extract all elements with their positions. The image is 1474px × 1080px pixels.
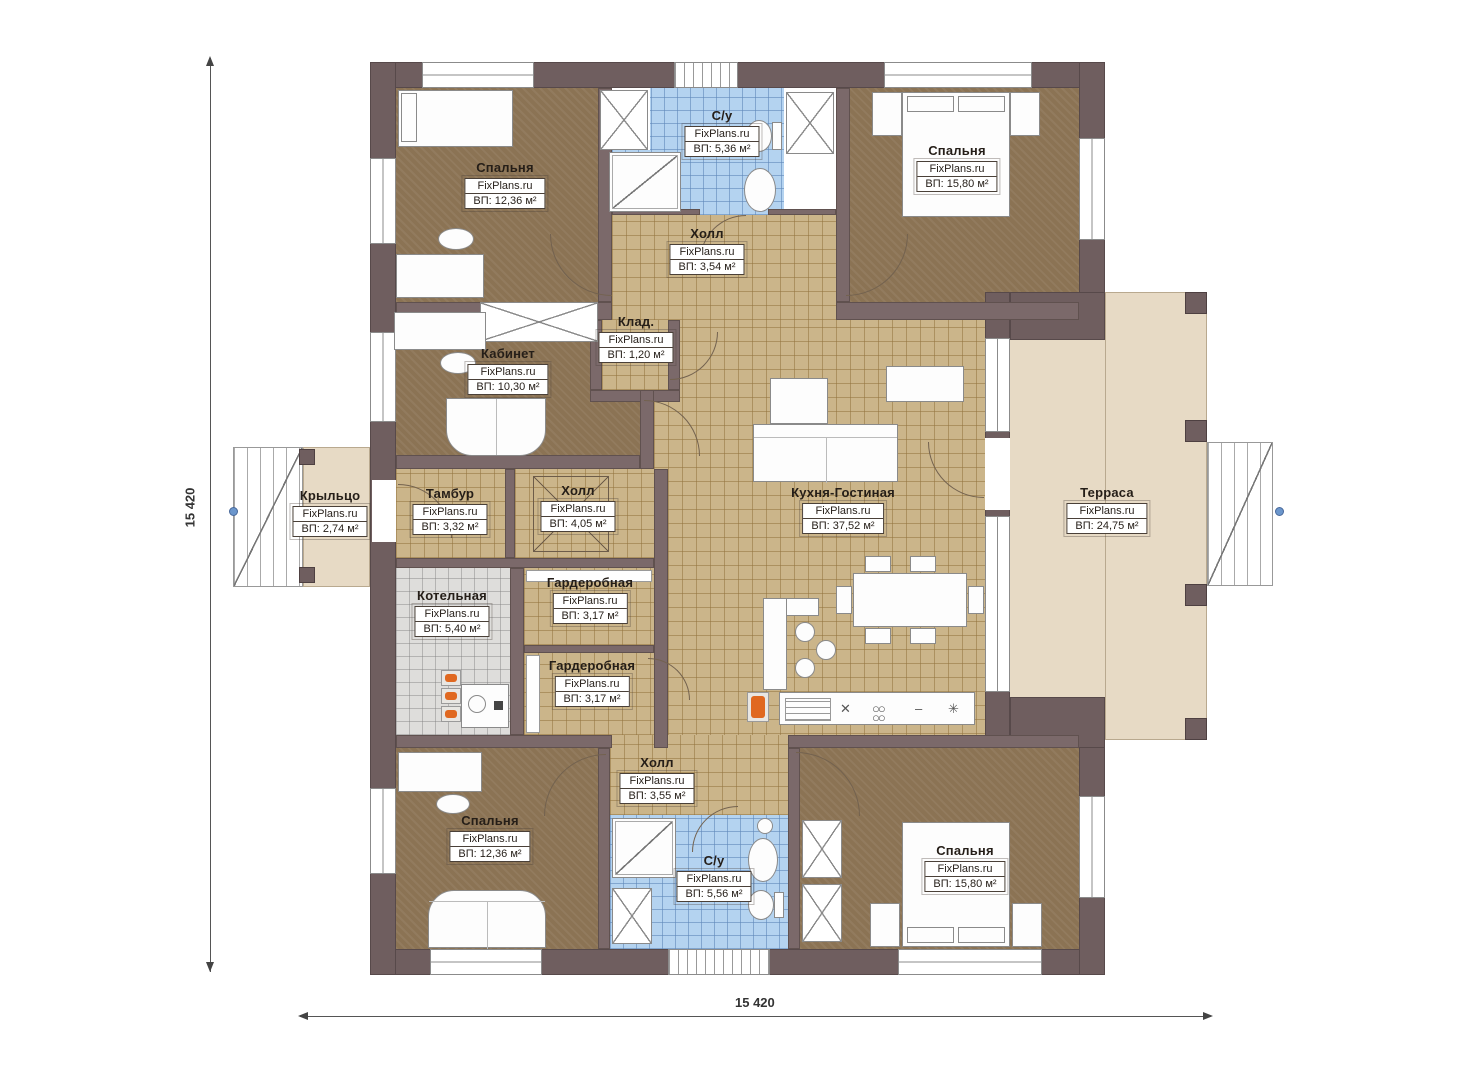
level-marker-icon — [229, 507, 238, 516]
room-area: ВП: 5,56 м² — [677, 887, 750, 901]
room-area: ВП: 37,52 м² — [803, 519, 882, 533]
toilet-tank — [772, 122, 782, 150]
wall-vestibule-boiler — [396, 558, 654, 568]
terrace-door-opening — [985, 438, 1010, 510]
room-label-bedroom-top-left: Спальня FixPlans.ru ВП: 12,36 м² — [464, 160, 545, 209]
dimension-arrow-down — [206, 962, 214, 972]
room-label-bathroom-bottom: С/у FixPlans.ru ВП: 5,56 м² — [676, 853, 751, 902]
bar-stool — [795, 622, 815, 642]
boiler-unit — [441, 706, 461, 722]
porch-pillar — [299, 567, 315, 583]
desk — [396, 254, 484, 298]
shower-tray — [612, 818, 676, 878]
window-terrace — [985, 338, 1010, 432]
wardrobe-cabinet — [600, 90, 648, 150]
wall-hall-kitchen — [654, 469, 668, 748]
watermark: FixPlans.ru — [1067, 504, 1146, 519]
desk — [394, 312, 486, 350]
tv-stand — [886, 366, 964, 402]
dimension-arrow-up — [206, 56, 214, 66]
room-name: Крыльцо — [292, 488, 367, 503]
room-label-porch: Крыльцо FixPlans.ru ВП: 2,74 м² — [292, 488, 367, 537]
room-name: Кабинет — [467, 346, 548, 361]
level-marker-icon — [1275, 507, 1284, 516]
room-name: Спальня — [464, 160, 545, 175]
wardrobe-cabinet — [786, 92, 834, 154]
room-label-vestibule: Тамбур FixPlans.ru ВП: 3,32 м² — [412, 486, 487, 535]
room-name: Гардеробная — [547, 575, 633, 590]
room-area: ВП: 3,32 м² — [413, 520, 486, 534]
window — [370, 332, 396, 422]
sink — [744, 168, 776, 212]
wall-bottom-band-left — [396, 735, 612, 748]
bar-stool — [795, 658, 815, 678]
room-area: ВП: 12,36 м² — [450, 847, 529, 861]
sofa — [428, 890, 546, 948]
room-label-wardrobe-upper: Гардеробная FixPlans.ru ВП: 3,17 м² — [547, 575, 633, 624]
room-area: ВП: 1,20 м² — [599, 348, 672, 362]
bar-stool — [816, 640, 836, 660]
room-label-hall-middle: Холл FixPlans.ru ВП: 4,05 м² — [540, 483, 615, 532]
wall-boiler-wardrobe — [510, 568, 524, 735]
drawers-unit — [785, 698, 831, 721]
nightstand — [1010, 92, 1040, 136]
dining-chair — [910, 556, 936, 572]
dishwasher-icon: – — [915, 702, 922, 715]
room-label-bedroom-bottom-right: Спальня FixPlans.ru ВП: 15,80 м² — [924, 843, 1005, 892]
bed-pillow — [907, 927, 954, 943]
chair — [436, 794, 470, 814]
room-name: Гардеробная — [549, 658, 635, 673]
room-name: Спальня — [916, 143, 997, 158]
terrace-pillar — [1185, 420, 1207, 442]
dimension-arrow-left — [298, 1012, 308, 1020]
chimney-vent-block — [674, 62, 738, 88]
room-name: Кухня-Гостиная — [791, 485, 895, 500]
watermark: FixPlans.ru — [553, 594, 626, 609]
wardrobe-cabinet — [612, 888, 652, 944]
bed — [398, 90, 513, 147]
room-area: ВП: 2,74 м² — [293, 522, 366, 536]
window — [1079, 796, 1105, 898]
chair — [438, 228, 474, 250]
desk — [398, 752, 482, 792]
room-area: ВП: 5,40 м² — [415, 622, 488, 636]
wall-wardrobe-divider — [524, 645, 654, 653]
window — [1079, 138, 1105, 240]
wall-vestibule-hall — [505, 469, 515, 558]
room-name: Холл — [540, 483, 615, 498]
room-label-terrace: Терраса FixPlans.ru ВП: 24,75 м² — [1066, 485, 1147, 534]
dining-chair — [968, 586, 984, 614]
bar-counter — [763, 598, 787, 690]
room-area: ВП: 3,54 м² — [670, 260, 743, 274]
cabinet — [770, 378, 828, 424]
kitchen-counter: ✕ ○○ ○○ – ✳ — [779, 692, 975, 725]
watermark: FixPlans.ru — [803, 504, 882, 519]
room-name: С/у — [676, 853, 751, 868]
sofa — [753, 424, 898, 482]
wardrobe-shelf — [526, 655, 540, 733]
window — [898, 949, 1042, 975]
bed-pillow — [958, 927, 1005, 943]
toilet — [748, 890, 774, 920]
vent-icon: ✳ — [948, 702, 959, 715]
room-label-kitchen-living: Кухня-Гостиная FixPlans.ru ВП: 37,52 м² — [791, 485, 895, 534]
wardrobe-cabinet — [480, 302, 598, 342]
room-name: Холл — [619, 755, 694, 770]
watermark: FixPlans.ru — [450, 832, 529, 847]
room-area: ВП: 15,80 м² — [925, 877, 1004, 891]
watermark: FixPlans.ru — [620, 774, 693, 789]
room-area: ВП: 3,17 м² — [553, 609, 626, 623]
floor-plan: 15 420 15 420 — [0, 0, 1474, 1080]
window — [370, 158, 396, 244]
room-label-hall-bottom: Холл FixPlans.ru ВП: 3,55 м² — [619, 755, 694, 804]
room-area: ВП: 4,05 м² — [541, 517, 614, 531]
dimension-label-vertical: 15 420 — [182, 488, 197, 528]
boiler-counter — [461, 684, 509, 728]
terrace-pillar — [1185, 718, 1207, 740]
dimension-label-horizontal: 15 420 — [735, 995, 775, 1010]
vent-block — [668, 949, 770, 975]
room-label-storage: Клад. FixPlans.ru ВП: 1,20 м² — [598, 314, 673, 363]
watermark: FixPlans.ru — [413, 505, 486, 520]
shower-tray — [609, 152, 681, 212]
window — [430, 949, 542, 975]
entry-door-opening — [372, 480, 396, 542]
watermark: FixPlans.ru — [293, 507, 366, 522]
watermark: FixPlans.ru — [468, 365, 547, 380]
watermark: FixPlans.ru — [541, 502, 614, 517]
watermark: FixPlans.ru — [925, 862, 1004, 877]
window-terrace — [985, 516, 1010, 692]
room-name: Клад. — [598, 314, 673, 329]
room-label-boiler-room: Котельная FixPlans.ru ВП: 5,40 м² — [414, 588, 489, 637]
room-name: Терраса — [1066, 485, 1147, 500]
boiler-unit — [441, 670, 461, 686]
room-name: Котельная — [414, 588, 489, 603]
nightstand — [872, 92, 902, 136]
nightstand — [1012, 903, 1042, 947]
terrace-pillar — [1185, 292, 1207, 314]
wall-su-hall-partition — [768, 209, 836, 215]
room-area: ВП: 12,36 м² — [465, 194, 544, 208]
sink — [748, 838, 778, 882]
porch-pillar — [299, 449, 315, 465]
watermark: FixPlans.ru — [677, 872, 750, 887]
room-label-office: Кабинет FixPlans.ru ВП: 10,30 м² — [467, 346, 548, 395]
watermark: FixPlans.ru — [465, 179, 544, 194]
dining-table — [853, 573, 967, 627]
terrace-pillar — [1185, 584, 1207, 606]
watermark: FixPlans.ru — [555, 677, 628, 692]
nightstand — [870, 903, 900, 947]
stove-icon: ○○ — [872, 711, 884, 724]
wardrobe-cabinet — [802, 820, 842, 878]
fireplace — [747, 692, 769, 722]
dining-chair — [910, 628, 936, 644]
room-area: ВП: 3,55 м² — [620, 789, 693, 803]
wall-office-bottom — [396, 455, 640, 469]
watermark: FixPlans.ru — [599, 333, 672, 348]
shower-glass-line — [615, 821, 673, 875]
room-name: Спальня — [924, 843, 1005, 858]
room-area: ВП: 5,36 м² — [685, 142, 758, 156]
room-label-bathroom-top: С/у FixPlans.ru ВП: 5,36 м² — [684, 108, 759, 157]
room-area: ВП: 3,17 м² — [555, 692, 628, 706]
wardrobe-cabinet — [802, 884, 842, 942]
wall-top-band-right — [836, 302, 1079, 320]
window — [370, 788, 396, 874]
dining-chair — [865, 628, 891, 644]
room-label-hall-top: Холл FixPlans.ru ВП: 3,54 м² — [669, 226, 744, 275]
shower-glass-line — [612, 155, 678, 209]
boiler-unit — [441, 688, 461, 704]
sofa — [446, 398, 546, 456]
watermark: FixPlans.ru — [917, 162, 996, 177]
room-area: ВП: 24,75 м² — [1067, 519, 1146, 533]
room-name: Спальня — [449, 813, 530, 828]
steps-direction-line — [1208, 443, 1272, 585]
bed-pillow — [907, 96, 954, 112]
watermark: FixPlans.ru — [670, 245, 743, 260]
watermark: FixPlans.ru — [685, 127, 758, 142]
room-label-wardrobe-lower: Гардеробная FixPlans.ru ВП: 3,17 м² — [549, 658, 635, 707]
boiler-tank — [468, 695, 486, 713]
dimension-line-vertical — [210, 58, 211, 972]
room-name: С/у — [684, 108, 759, 123]
window — [884, 62, 1032, 88]
wall-storage-bottom — [590, 390, 680, 402]
wall-bottom-band-right — [788, 735, 1079, 748]
toilet-tank — [774, 892, 784, 918]
room-label-bedroom-bottom-left: Спальня FixPlans.ru ВП: 12,36 м² — [449, 813, 530, 862]
room-name: Холл — [669, 226, 744, 241]
bed-pillow — [401, 93, 417, 142]
watermark: FixPlans.ru — [415, 607, 488, 622]
dimension-line-horizontal — [300, 1016, 1211, 1017]
window — [422, 62, 534, 88]
bed-pillow — [958, 96, 1005, 112]
room-area: ВП: 10,30 м² — [468, 380, 547, 394]
dining-chair — [865, 556, 891, 572]
terrace-steps — [1207, 442, 1273, 586]
dining-chair — [836, 586, 852, 614]
sink-icon: ✕ — [840, 702, 851, 715]
dimension-arrow-right — [1203, 1012, 1213, 1020]
washing-machine — [757, 818, 773, 834]
room-area: ВП: 15,80 м² — [917, 177, 996, 191]
room-name: Тамбур — [412, 486, 487, 501]
room-label-bedroom-top-right: Спальня FixPlans.ru ВП: 15,80 м² — [916, 143, 997, 192]
